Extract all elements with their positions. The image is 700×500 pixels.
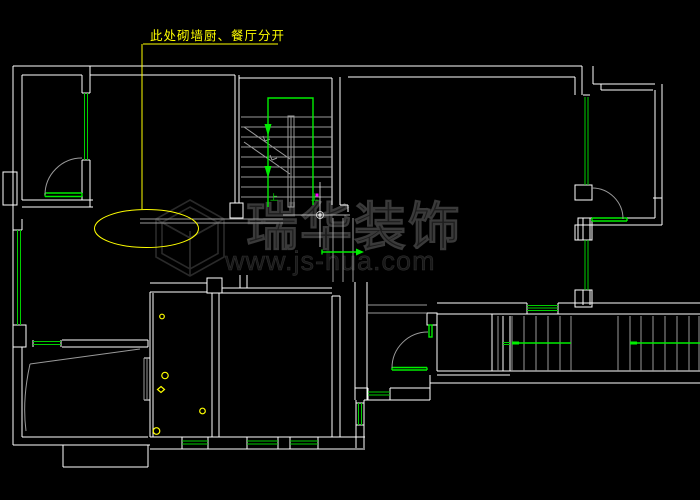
watermark-url-text: www.js-hua.com <box>224 246 436 276</box>
window <box>18 230 21 325</box>
stair-route-arrowhead <box>265 124 272 136</box>
corridor-staircase <box>498 316 700 371</box>
window <box>585 97 588 185</box>
fixture-symbol <box>200 408 206 414</box>
fixture-symbol <box>160 314 165 319</box>
window <box>290 441 318 444</box>
door-swing-arc <box>25 349 140 431</box>
door-leaf <box>45 193 82 197</box>
annotation-ellipse <box>95 210 199 248</box>
door-leaf <box>592 218 627 221</box>
door-swing-arc <box>592 188 623 219</box>
window <box>359 403 362 425</box>
window <box>33 342 61 345</box>
window <box>527 306 558 311</box>
door-swing-arc <box>392 332 428 368</box>
main-staircase: 上 上 <box>241 98 332 207</box>
watermark: 瑞华装饰 www.js-hua.com <box>156 199 462 276</box>
window <box>503 343 510 345</box>
window <box>182 441 208 444</box>
stair-railing <box>288 116 294 207</box>
fixture-symbol <box>162 372 168 378</box>
window <box>247 441 278 444</box>
cad-floor-plan-screen: 瑞华装饰 www.js-hua.com 上 上 <box>0 0 700 500</box>
stair-route-arrowhead <box>265 166 272 178</box>
bathroom-fixture-symbols <box>153 314 205 434</box>
watermark-cube-logo-icon <box>156 200 224 276</box>
floor-plan-drawing-canvas[interactable]: 瑞华装饰 www.js-hua.com 上 上 <box>0 0 700 500</box>
fixture-symbol-diamond <box>158 387 165 393</box>
door-leaf <box>392 368 427 371</box>
stair-up-label: 上 <box>270 193 278 202</box>
annotation-text: 此处砌墙厨、餐厅分开 <box>150 28 285 43</box>
cad-node-marker <box>316 194 319 197</box>
window <box>368 392 390 395</box>
fixture-symbol <box>153 428 160 435</box>
door-frame-stop <box>429 325 432 337</box>
door-swing-arc <box>45 158 82 195</box>
window <box>585 240 588 290</box>
window <box>85 93 88 160</box>
